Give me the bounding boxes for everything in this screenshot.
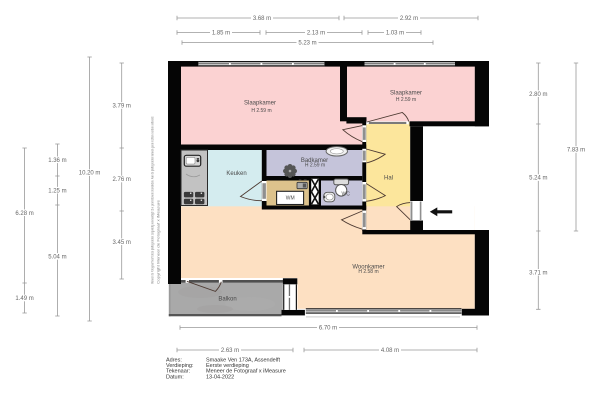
svg-text:1.49 m: 1.49 m bbox=[15, 296, 33, 302]
svg-text:5.24 m: 5.24 m bbox=[529, 176, 547, 182]
svg-text:10.20 m: 10.20 m bbox=[79, 171, 101, 177]
svg-text:2.76 m: 2.76 m bbox=[113, 177, 131, 183]
svg-text:Datum:: Datum: bbox=[166, 374, 184, 380]
svg-text:13-04-2022: 13-04-2022 bbox=[206, 374, 234, 380]
svg-text:Copyright Meneer de Fotograaf: Copyright Meneer de Fotograaf x iMeasure bbox=[157, 200, 161, 284]
svg-text:4.08 m: 4.08 m bbox=[381, 348, 399, 354]
svg-text:Meneer de Fotograaf heeft deze: Meneer de Fotograaf heeft deze plattegro… bbox=[151, 116, 155, 284]
svg-text:5.04 m: 5.04 m bbox=[48, 255, 66, 261]
svg-text:Hal: Hal bbox=[384, 176, 393, 182]
svg-text:H 2.59 m: H 2.59 m bbox=[396, 97, 416, 103]
svg-text:3.45 m: 3.45 m bbox=[113, 240, 131, 246]
svg-text:Slaapkamer: Slaapkamer bbox=[244, 101, 276, 107]
svg-text:Balkon: Balkon bbox=[218, 297, 236, 303]
svg-text:1.03 m: 1.03 m bbox=[386, 31, 404, 37]
svg-text:6.28 m: 6.28 m bbox=[15, 211, 33, 217]
svg-text:H 2.58 m: H 2.58 m bbox=[358, 269, 378, 275]
svg-text:WC: WC bbox=[342, 191, 351, 197]
svg-text:6.70 m: 6.70 m bbox=[319, 326, 337, 332]
svg-text:1.36 m: 1.36 m bbox=[48, 158, 66, 164]
svg-text:H 2.59 m: H 2.59 m bbox=[305, 163, 325, 169]
svg-text:Slaapkamer: Slaapkamer bbox=[390, 91, 422, 97]
svg-text:1.85 m: 1.85 m bbox=[212, 31, 230, 37]
svg-text:7.83 m: 7.83 m bbox=[567, 148, 585, 154]
svg-text:2.13 m: 2.13 m bbox=[307, 31, 325, 37]
svg-text:2.63 m: 2.63 m bbox=[221, 348, 239, 354]
svg-text:5.23 m: 5.23 m bbox=[298, 41, 316, 47]
svg-text:1.25 m: 1.25 m bbox=[48, 188, 66, 194]
svg-text:3.68 m: 3.68 m bbox=[253, 16, 271, 22]
svg-text:2.80 m: 2.80 m bbox=[529, 92, 547, 98]
svg-text:Keuken: Keuken bbox=[226, 171, 246, 177]
svg-text:H 2.59 m: H 2.59 m bbox=[251, 108, 271, 114]
svg-text:2.92 m: 2.92 m bbox=[400, 16, 418, 22]
svg-text:WM: WM bbox=[286, 196, 295, 202]
svg-text:3.71 m: 3.71 m bbox=[529, 270, 547, 276]
svg-text:3.79 m: 3.79 m bbox=[113, 104, 131, 110]
